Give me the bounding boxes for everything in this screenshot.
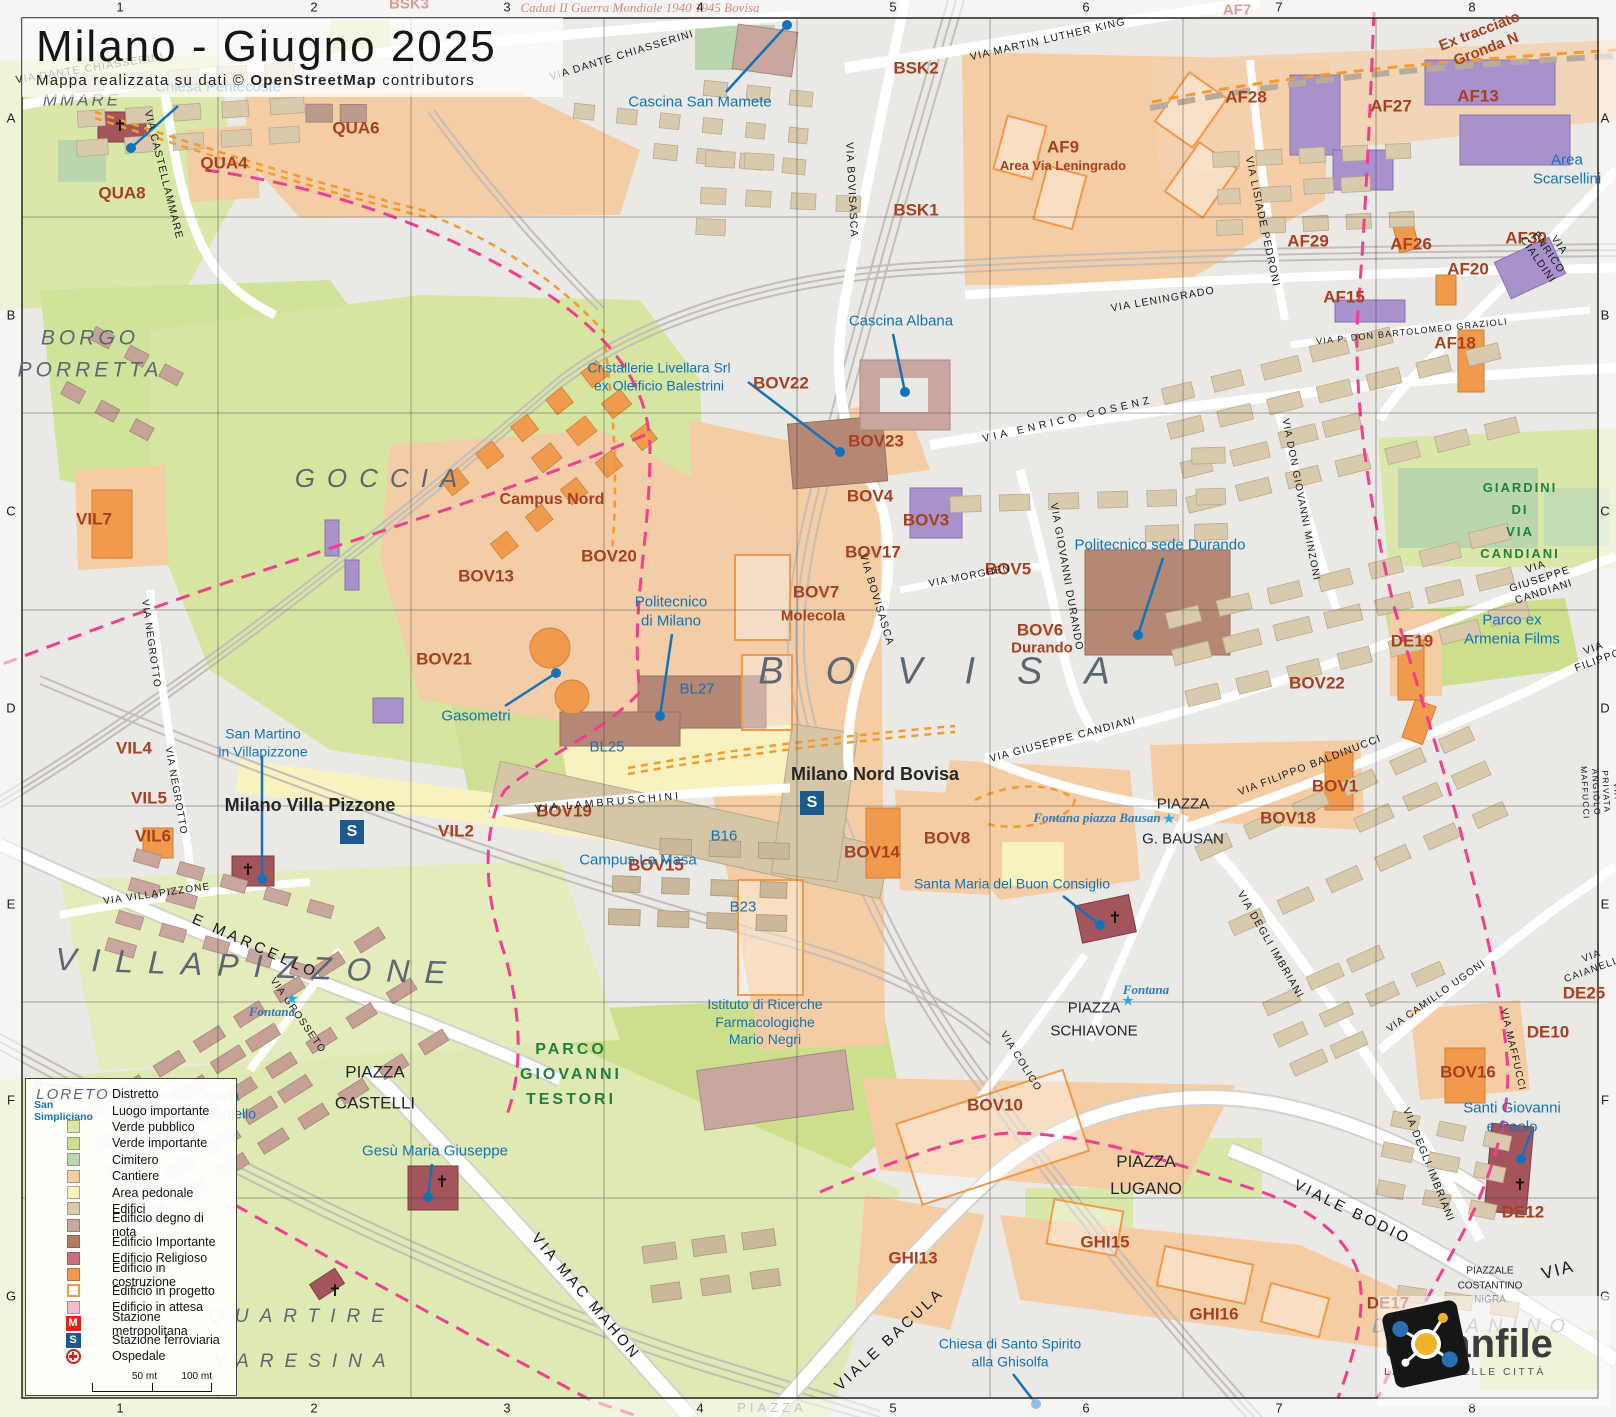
legend-item-rail-label: Stazione ferroviaria [112, 1333, 220, 1347]
legend-item-hospital-label: Ospedale [112, 1349, 166, 1363]
legend-item-verde-pubblico-label: Verde pubblico [112, 1120, 195, 1134]
grid-row-right-C: C [1600, 504, 1609, 519]
legend-swatch [67, 1252, 80, 1265]
legend-swatch [67, 1137, 80, 1150]
legend-item-area-pedonale-label: Area pedonale [112, 1186, 193, 1200]
grid-col-top-6: 6 [1082, 0, 1089, 15]
legend-item-metro: MStazione metropolitana [34, 1315, 228, 1331]
legend-item-edificio-importante-label: Edificio Importante [112, 1235, 216, 1249]
grid-row-left-C: C [6, 504, 15, 519]
grid-col-bottom-7: 7 [1275, 1401, 1282, 1416]
urbanfile-logo: urbanfile LA VOCE DELLE CITTÀ [1378, 1296, 1610, 1406]
map-canvas: QUA8QUA4QUA6BSK2BSK1AF9Area Via Leningra… [0, 0, 1616, 1417]
legend-metro-icon: M [66, 1316, 81, 1331]
legend-item-cimitero-label: Cimitero [112, 1153, 159, 1167]
legend-item-cantiere: Cantiere [34, 1168, 228, 1184]
grid-row-right-A: A [1601, 111, 1610, 126]
grid-col-top-5: 5 [889, 0, 896, 15]
legend-item-verde-pubblico: Verde pubblico [34, 1119, 228, 1135]
scale-full-label: 100 mt [181, 1371, 212, 1382]
map-title-block: Milano - Giugno 2025 Mappa realizzata su… [22, 18, 563, 97]
legend-item-cantiere-label: Cantiere [112, 1169, 159, 1183]
grid-col-bottom-4: 4 [696, 1401, 703, 1416]
legend-swatch [67, 1153, 80, 1166]
legend-swatch [67, 1268, 80, 1281]
grid-row-right-B: B [1601, 308, 1610, 323]
legend-item-distretto-label: Distretto [112, 1087, 159, 1101]
legend-item-luogo: San SimplicianoLuogo importante [34, 1102, 228, 1118]
legend-item-edificio-in-costruzione: Edificio in costruzione [34, 1266, 228, 1282]
grid-col-top-3: 3 [503, 0, 510, 15]
legend-swatch [67, 1284, 80, 1297]
grid-row-left-F: F [7, 1093, 15, 1108]
legend-item-edificio-in-progetto-label: Edificio in progetto [112, 1284, 215, 1298]
legend-swatch [67, 1202, 80, 1215]
osm-credit: OpenStreetMap [250, 72, 376, 89]
legend-item-edificio-degno-di-nota: Edificio degno di nota [34, 1217, 228, 1233]
grid-row-left-G: G [6, 1289, 16, 1304]
map-grid [0, 0, 1616, 1417]
legend-item-edificio-importante: Edificio Importante [34, 1234, 228, 1250]
map-legend: LORETODistrettoSan SimplicianoLuogo impo… [25, 1078, 237, 1396]
legend-swatch [67, 1186, 80, 1199]
legend-scale-bar: 50 mt100 mt [92, 1371, 212, 1392]
legend-item-hospital: Ospedale [34, 1348, 228, 1364]
grid-col-top-8: 8 [1468, 0, 1475, 15]
legend-swatch [67, 1235, 80, 1248]
grid-row-left-E: E [7, 897, 16, 912]
page-title: Milano - Giugno 2025 [36, 24, 551, 70]
scale-half-label: 50 mt [132, 1371, 157, 1382]
grid-col-bottom-2: 2 [310, 1401, 317, 1416]
legend-hospital-icon [66, 1349, 81, 1364]
grid-col-top-2: 2 [310, 0, 317, 15]
grid-row-left-B: B [7, 308, 16, 323]
legend-swatch [67, 1301, 80, 1314]
urbanfile-logo-icon [1378, 1296, 1474, 1392]
grid-col-bottom-1: 1 [116, 1401, 123, 1416]
map-subtitle: Mappa realizzata su dati © OpenStreetMap… [36, 72, 551, 89]
legend-item-rail: SStazione ferroviaria [34, 1332, 228, 1348]
legend-rail-icon: S [66, 1333, 81, 1348]
grid-col-bottom-5: 5 [889, 1401, 896, 1416]
legend-item-edificio-in-progetto: Edificio in progetto [34, 1283, 228, 1299]
legend-item-area-pedonale: Area pedonale [34, 1184, 228, 1200]
legend-swatch [67, 1170, 80, 1183]
grid-row-left-D: D [6, 701, 15, 716]
grid-col-bottom-3: 3 [503, 1401, 510, 1416]
grid-col-bottom-6: 6 [1082, 1401, 1089, 1416]
grid-col-top-4: 4 [696, 0, 703, 15]
legend-item-cimitero: Cimitero [34, 1152, 228, 1168]
legend-item-verde-importante-label: Verde importante [112, 1136, 207, 1150]
grid-row-right-F: F [1601, 1093, 1609, 1108]
grid-row-right-D: D [1600, 701, 1609, 716]
grid-col-top-1: 1 [116, 0, 123, 15]
legend-item-verde-importante: Verde importante [34, 1135, 228, 1151]
legend-swatch [67, 1120, 80, 1133]
grid-row-right-E: E [1601, 897, 1610, 912]
grid-col-top-7: 7 [1275, 0, 1282, 15]
legend-swatch [67, 1219, 80, 1232]
legend-item-luogo-label: Luogo importante [112, 1104, 209, 1118]
grid-row-left-A: A [7, 111, 16, 126]
